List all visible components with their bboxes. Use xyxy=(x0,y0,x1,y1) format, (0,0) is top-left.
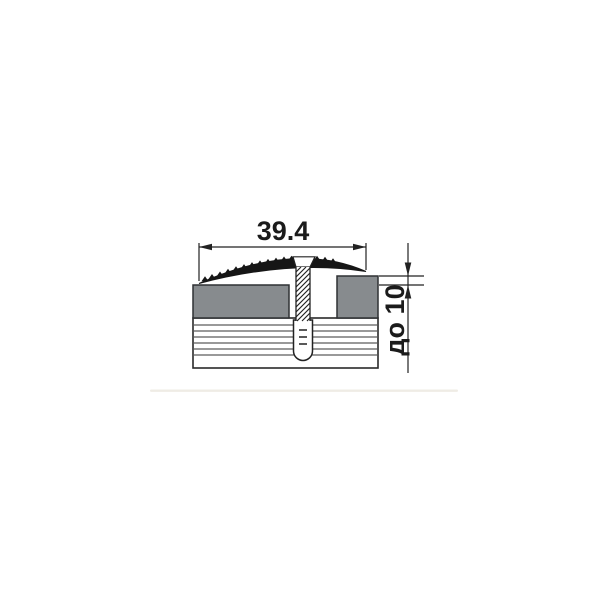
height-extension-lines xyxy=(379,276,424,285)
right-floor-covering xyxy=(337,276,378,318)
height-dimension-label: до 10 xyxy=(380,284,410,355)
technical-drawing: 39.4 до 10 xyxy=(0,0,600,600)
dowel-body xyxy=(294,320,313,361)
height-dimension: до 10 xyxy=(379,243,424,373)
width-arrow-right xyxy=(353,244,366,250)
width-dimension-label: 39.4 xyxy=(257,216,310,246)
dowel-anchor xyxy=(294,320,313,361)
faint-smudge-line xyxy=(150,390,458,392)
drawing-canvas: 39.4 до 10 xyxy=(0,0,600,600)
width-arrow-left xyxy=(199,244,212,250)
subfloor-layers xyxy=(193,318,378,368)
width-dimension: 39.4 xyxy=(199,216,366,281)
height-arrow-down xyxy=(405,263,412,277)
left-floor-covering xyxy=(193,285,289,318)
